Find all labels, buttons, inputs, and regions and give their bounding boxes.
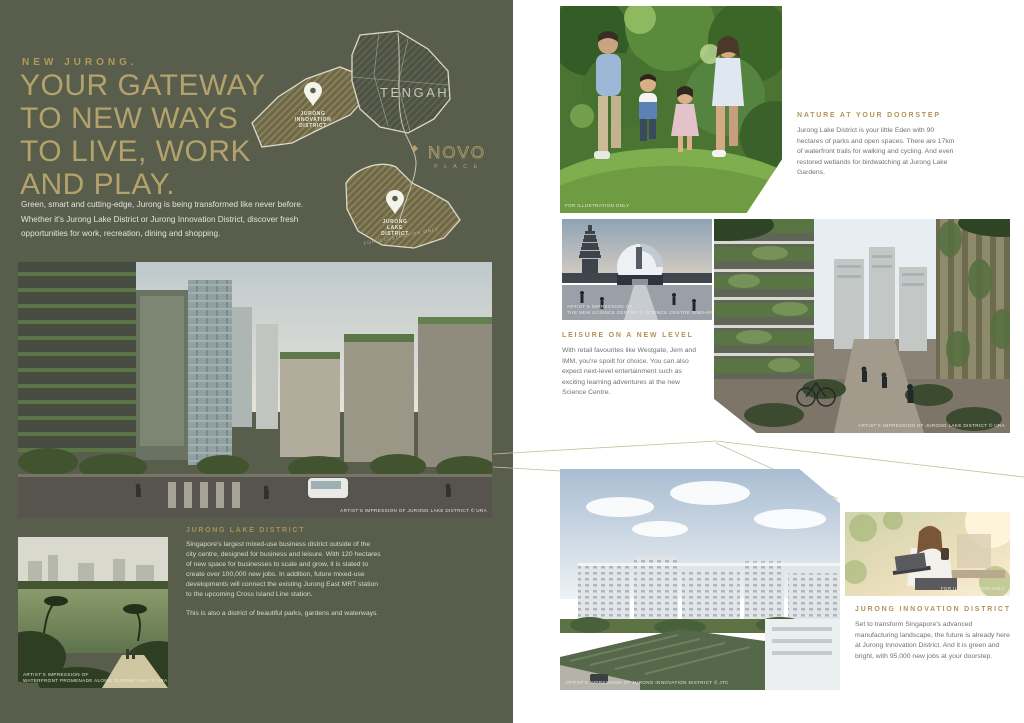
map-pin-innovation-label: DISTRICT bbox=[299, 123, 327, 129]
lake-district-street-photo: ARTIST'S IMPRESSION OF JURONG LAKE DISTR… bbox=[714, 219, 1010, 433]
hero-image-jurong-lake-district: ARTIST'S IMPRESSION OF JURONG LAKE DISTR… bbox=[18, 262, 492, 518]
section-body: This is also a district of beautiful par… bbox=[186, 609, 382, 619]
kicker-heading: NEW JURONG. bbox=[22, 57, 138, 68]
section-heading: LEISURE ON A NEW LEVEL bbox=[562, 332, 702, 339]
section-nature: NATURE AT YOUR DOORSTEP Jurong Lake Dist… bbox=[797, 112, 955, 179]
headline-line-3: TO LIVE, WORK bbox=[20, 135, 265, 168]
family-park-photo: FOR ILLUSTRATION ONLY bbox=[560, 6, 782, 213]
estate-photo-caption: ARTIST'S IMPRESSION OF JURONG INNOVATION… bbox=[565, 680, 729, 686]
novo-place-logo-sub: P L A C E bbox=[434, 164, 480, 170]
novo-place-logo: NOVO bbox=[428, 143, 486, 162]
innovation-district-photo: ARTIST'S IMPRESSION OF JURONG INNOVATION… bbox=[560, 469, 840, 690]
promenade-image: ARTIST'S IMPRESSION OF WATERFRONT PROMEN… bbox=[18, 537, 168, 688]
headline-line-1: YOUR GATEWAY bbox=[20, 69, 265, 102]
section-heading: JURONG INNOVATION DISTRICT bbox=[855, 606, 1013, 613]
headline-line-4: AND PLAY. bbox=[20, 168, 265, 201]
novo-place-marker bbox=[411, 145, 418, 152]
section-jurong-lake-district: JURONG LAKE DISTRICT Singapore's largest… bbox=[186, 527, 382, 619]
section-body: Jurong Lake District is your little Eden… bbox=[797, 126, 955, 179]
headline-line-2: TO NEW WAYS bbox=[20, 102, 265, 135]
section-innovation: JURONG INNOVATION DISTRICT Set to transf… bbox=[855, 606, 1013, 662]
section-leisure: LEISURE ON A NEW LEVEL With retail favou… bbox=[562, 332, 702, 399]
main-headline: YOUR GATEWAY TO NEW WAYS TO LIVE, WORK A… bbox=[20, 69, 265, 201]
street-photo-caption: ARTIST'S IMPRESSION OF JURONG LAKE DISTR… bbox=[858, 423, 1005, 429]
section-body: With retail favourites like Westgate, Je… bbox=[562, 346, 702, 399]
promenade-caption: ARTIST'S IMPRESSION OF WATERFRONT PROMEN… bbox=[23, 672, 168, 684]
woman-laptop-photo: FOR ILLUSTRATION ONLY bbox=[845, 512, 1010, 596]
science-centre-photo: ARTIST'S IMPRESSION OF THE NEW SCIENCE C… bbox=[562, 219, 712, 320]
map-region-innovation[interactable] bbox=[252, 67, 366, 147]
section-heading: JURONG LAKE DISTRICT bbox=[186, 527, 382, 534]
woman-photo-caption: FOR ILLUSTRATION ONLY bbox=[941, 586, 1005, 592]
district-map: TENGAH JURONG INNOVATION DISTRICT JURONG… bbox=[248, 5, 512, 257]
brochure-spread: NEW JURONG. YOUR GATEWAY TO NEW WAYS TO … bbox=[0, 0, 1024, 723]
science-photo-caption: ARTIST'S IMPRESSION OF THE NEW SCIENCE C… bbox=[567, 304, 712, 316]
family-photo-caption: FOR ILLUSTRATION ONLY bbox=[565, 203, 629, 209]
section-body: Set to transform Singapore's advanced ma… bbox=[855, 620, 1013, 662]
section-heading: NATURE AT YOUR DOORSTEP bbox=[797, 112, 955, 119]
map-label-tengah: TENGAH bbox=[380, 85, 449, 100]
left-page-panel: NEW JURONG. YOUR GATEWAY TO NEW WAYS TO … bbox=[0, 0, 513, 723]
hero-image-caption: ARTIST'S IMPRESSION OF JURONG LAKE DISTR… bbox=[340, 508, 487, 514]
section-body: Singapore's largest mixed-use business d… bbox=[186, 540, 382, 600]
